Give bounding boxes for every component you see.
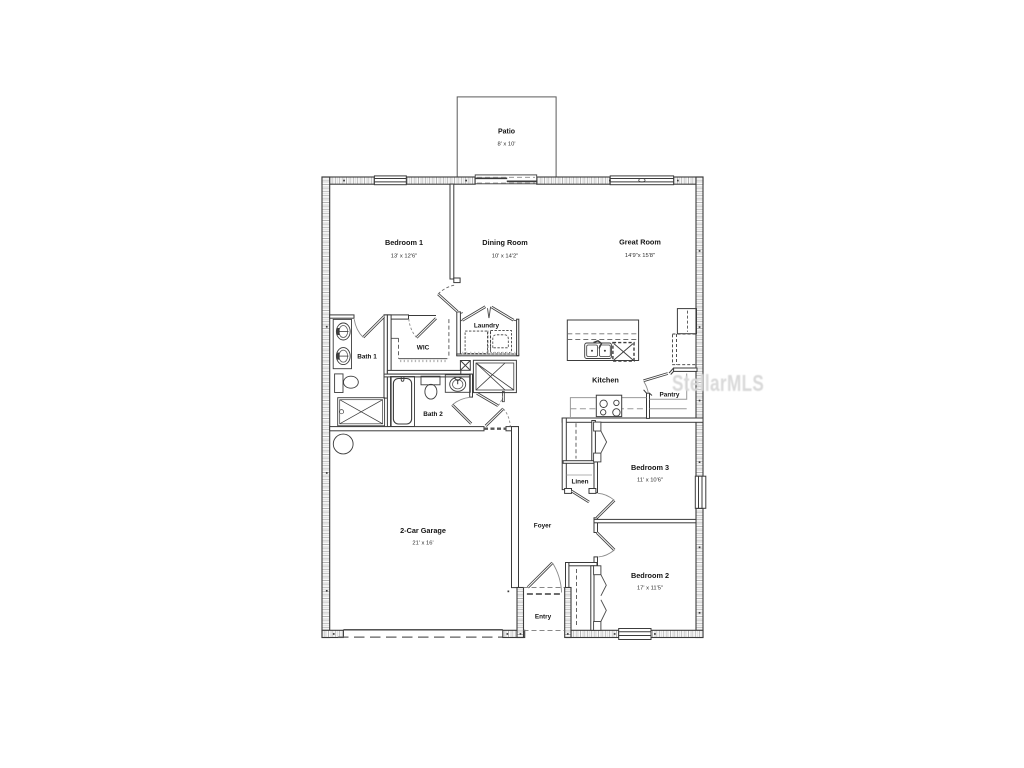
- svg-text:13' x 12'6": 13' x 12'6": [391, 254, 418, 260]
- svg-text:Kitchen: Kitchen: [592, 375, 619, 384]
- svg-text:2-Car Garage: 2-Car Garage: [400, 526, 446, 535]
- svg-text:Laundry: Laundry: [474, 322, 500, 329]
- svg-text:21' x 16': 21' x 16': [412, 541, 433, 547]
- svg-text:Bath 1: Bath 1: [357, 354, 377, 361]
- svg-text:11' x 10'6": 11' x 10'6": [637, 478, 663, 484]
- svg-text:Dining Room: Dining Room: [482, 238, 528, 247]
- svg-text:17' x 11'5": 17' x 11'5": [637, 586, 663, 592]
- svg-text:Entry: Entry: [535, 614, 552, 621]
- svg-text:Patio: Patio: [498, 129, 515, 136]
- svg-text:10' x 14'2": 10' x 14'2": [492, 254, 519, 260]
- svg-text:8' x 10': 8' x 10': [497, 142, 515, 148]
- svg-text:Linen: Linen: [571, 479, 588, 486]
- svg-text:Great Room: Great Room: [619, 237, 661, 246]
- svg-text:Bedroom 2: Bedroom 2: [631, 571, 669, 580]
- svg-text:Bedroom 3: Bedroom 3: [631, 463, 669, 472]
- svg-text:WIC: WIC: [417, 345, 430, 352]
- svg-text:Foyer: Foyer: [534, 523, 552, 530]
- svg-text:14'9"x 15'8": 14'9"x 15'8": [625, 253, 655, 259]
- svg-text:Bedroom 1: Bedroom 1: [385, 238, 423, 247]
- svg-text:Bath 2: Bath 2: [423, 411, 443, 418]
- svg-text:StellarMLS: StellarMLS: [672, 372, 764, 397]
